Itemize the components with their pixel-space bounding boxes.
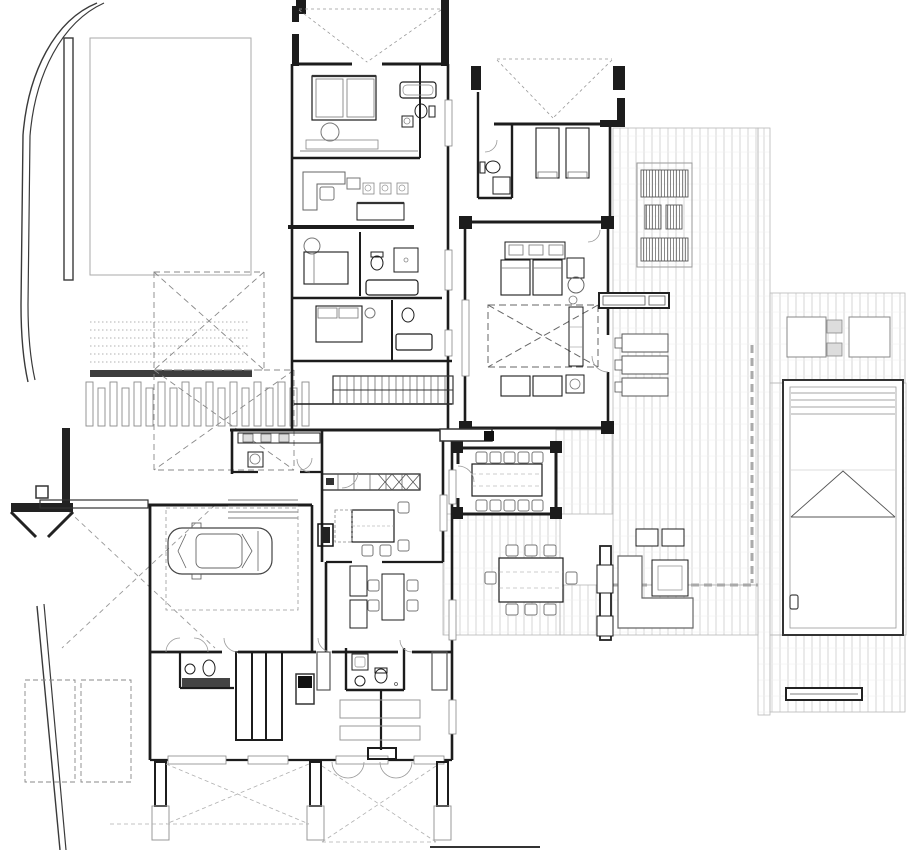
bed-foot-bench [533, 376, 562, 396]
closet [350, 600, 367, 628]
bed [533, 260, 562, 295]
fence-wall [64, 38, 73, 280]
entry-steps [228, 500, 298, 518]
car-roof [196, 534, 242, 568]
sun-lounger [787, 317, 826, 357]
door-swing [588, 230, 600, 242]
plot-lawn [90, 38, 251, 275]
stool [362, 545, 373, 556]
window [445, 100, 452, 146]
side-unit [347, 178, 360, 189]
bed-foot [568, 172, 587, 178]
window [449, 470, 456, 504]
toilet-tank [480, 162, 485, 173]
closet-row [505, 242, 565, 259]
porch-roof-lines [110, 764, 309, 824]
wardrobe [266, 652, 282, 740]
layer-walls [36, 0, 625, 840]
column-base [434, 806, 451, 840]
lounge-chair [622, 334, 668, 396]
toilet [486, 161, 500, 173]
porch-column [437, 762, 448, 806]
dining-chair [476, 452, 543, 463]
closet-section [549, 245, 563, 255]
vanity-counter [182, 678, 230, 687]
appliance [243, 434, 253, 442]
bed-foot-bench [501, 376, 530, 396]
closet [350, 566, 367, 596]
outdoor-chair [506, 545, 518, 556]
cabinet-divider [338, 474, 402, 490]
outdoor-chair [506, 604, 556, 615]
toilet [371, 256, 383, 270]
dining-chair [518, 452, 529, 463]
window [440, 495, 447, 531]
planter-bench [599, 293, 669, 308]
pendant-light [380, 183, 391, 194]
door-swing [485, 140, 497, 152]
car-windshield [242, 534, 252, 568]
lounge-chair [622, 378, 668, 396]
side-table [321, 123, 339, 141]
parking-space [25, 680, 75, 782]
garden-steps [90, 322, 250, 362]
pergola-louvers [122, 388, 129, 426]
dining-chair [476, 500, 487, 511]
closet-section [509, 245, 523, 255]
door-swing [300, 458, 312, 470]
stool [398, 540, 409, 551]
closet-section [529, 245, 543, 255]
roof-x-lines [154, 272, 264, 370]
car [168, 528, 272, 574]
toilet-tank [429, 106, 435, 117]
pergola-louvers [230, 382, 237, 426]
site-boundary [44, 604, 66, 850]
wardrobe [432, 652, 447, 690]
window [445, 330, 452, 356]
post [601, 216, 614, 229]
shower-tray [355, 657, 365, 667]
lounge-chair-arm [615, 360, 622, 370]
dresser [567, 258, 584, 278]
window [462, 300, 469, 376]
car-mirror [192, 574, 201, 579]
dining-chair [476, 500, 543, 511]
courtyard-roof-x [299, 10, 441, 62]
pergola-louvers [134, 382, 141, 426]
entry-gate-flare [11, 512, 36, 537]
dining-chair [476, 452, 487, 463]
chair [368, 600, 379, 611]
pergola-louvers [182, 382, 189, 426]
ottoman [662, 529, 684, 546]
car-rear-window [178, 534, 186, 568]
side-table [365, 308, 375, 318]
courtyard-roof-x [497, 60, 612, 118]
pergola-louvers [110, 382, 117, 426]
pendant-light [363, 183, 408, 194]
outdoor-chair [525, 545, 537, 556]
bed-foot [538, 172, 557, 178]
site-boundary [37, 606, 60, 850]
outdoor-chair [645, 205, 661, 229]
bed [566, 128, 589, 178]
post [459, 216, 472, 229]
door-swing [592, 356, 608, 372]
outdoor-chair [666, 205, 682, 229]
cooktop [326, 478, 334, 485]
lounge-chair [622, 334, 668, 352]
window [168, 756, 226, 764]
shower [493, 177, 510, 194]
wall [292, 34, 299, 66]
dining-table [472, 464, 542, 496]
lounge-chair-arm [615, 338, 622, 392]
sink-basin [404, 118, 410, 124]
door-swing [297, 459, 310, 472]
pergola-louvers [254, 382, 261, 426]
stool [398, 502, 409, 513]
pergola-louvers [206, 382, 213, 426]
chair [407, 600, 418, 611]
mattress [316, 79, 343, 117]
porch-roof-lines [322, 766, 436, 842]
bench [306, 140, 378, 149]
outdoor-chair [485, 572, 496, 584]
window [449, 600, 456, 640]
pillow [339, 308, 358, 318]
window [445, 250, 452, 290]
porch-column [155, 762, 166, 806]
screen-post [597, 565, 613, 593]
tall-cabinets [378, 474, 420, 490]
timber-deck [556, 430, 613, 514]
sink [185, 664, 195, 674]
pergola-louvers [242, 388, 249, 426]
retaining-wall [90, 370, 252, 377]
bed [312, 76, 376, 120]
appliance [298, 676, 312, 688]
column-base [307, 806, 324, 840]
site-boundary [28, 3, 104, 380]
screen-post [597, 616, 613, 636]
bed [304, 252, 348, 284]
coffee-table [652, 560, 688, 596]
pendant-light [397, 183, 408, 194]
dining-chair [490, 452, 501, 463]
pergola-louvers [158, 382, 165, 426]
stool-round [569, 296, 577, 304]
stool [380, 545, 391, 556]
toilet [402, 308, 414, 322]
window [248, 756, 288, 764]
pergola-louvers [278, 382, 285, 426]
sun-lounger [849, 317, 890, 357]
wall [600, 120, 625, 127]
post [550, 507, 562, 519]
chair [320, 187, 334, 200]
entry-gate-flare [48, 512, 73, 537]
washer-drum [250, 454, 260, 464]
appliance [279, 434, 289, 442]
parking-space [81, 680, 131, 782]
closet-section [509, 245, 563, 255]
outdoor-chair [544, 604, 556, 615]
window [449, 700, 456, 734]
pergola-louvers [266, 388, 273, 426]
bed [536, 128, 559, 178]
sofa [357, 203, 404, 220]
outdoor-chair [506, 604, 518, 615]
wall [613, 66, 625, 90]
column-base [152, 806, 169, 840]
chair-round [568, 277, 584, 293]
shelf-column [569, 307, 583, 366]
side-table [566, 375, 584, 393]
side-table [827, 320, 842, 333]
pendant-light [365, 185, 405, 191]
bathtub [400, 82, 436, 98]
dining-chair [504, 500, 515, 511]
bathtub [366, 280, 418, 295]
side-table [827, 343, 842, 356]
bathtub-inner [403, 85, 433, 95]
post [484, 431, 494, 441]
outdoor-chair [544, 545, 556, 556]
door-swing [224, 638, 238, 652]
lamp [570, 379, 580, 389]
door-swing [166, 638, 180, 652]
lounge-chair-arm [615, 338, 622, 348]
dining-chair [532, 500, 543, 511]
kitchen-counter [322, 474, 420, 490]
post [550, 441, 562, 453]
swimming-pool [783, 380, 903, 635]
island-overhang [335, 510, 352, 542]
shower [352, 654, 368, 670]
parking-bay [166, 508, 298, 610]
tap [395, 683, 398, 686]
double-height-void [488, 305, 598, 367]
void-x-lines [488, 305, 598, 367]
post [601, 421, 614, 434]
shower [394, 248, 418, 272]
lounge-chair-arm [615, 382, 622, 392]
wall [441, 0, 449, 66]
ottoman [636, 529, 658, 546]
pergola-louvers [146, 388, 153, 426]
outdoor-chair [566, 572, 577, 584]
sink [355, 676, 365, 686]
outdoor-chair [525, 604, 537, 615]
dining-chair [532, 452, 543, 463]
dining-chair [490, 500, 501, 511]
dining-chair [504, 452, 515, 463]
pergola-louvers [86, 382, 309, 426]
appliance [243, 434, 289, 442]
shelf-lines [569, 327, 583, 347]
outdoor-bench [641, 238, 688, 261]
pendant-light [399, 185, 405, 191]
floor-plan-page [0, 0, 911, 850]
chair [407, 580, 418, 591]
pergola-louvers [218, 388, 225, 426]
pillow [318, 308, 337, 318]
appliance [261, 434, 271, 442]
boundary-wall [62, 428, 70, 504]
plan-root [11, 0, 906, 850]
post [36, 486, 48, 498]
pendant-light [365, 185, 371, 191]
outdoor-dining-table [499, 558, 563, 602]
door-swing-arcs [332, 762, 412, 778]
pendant-light [382, 185, 388, 191]
toilet [203, 660, 215, 676]
floor-plan-svg [0, 0, 911, 850]
pergola-louvers [170, 388, 177, 426]
door-swing [194, 638, 208, 652]
outdoor-bench [641, 170, 688, 197]
fireplace-core [321, 527, 330, 543]
shower-drain [404, 258, 408, 262]
pendant-light [363, 183, 374, 194]
bed [501, 260, 530, 295]
porch-column [310, 762, 321, 806]
mattress [347, 79, 374, 117]
outdoor-chair [506, 545, 556, 556]
chair [368, 580, 379, 591]
toilet [375, 669, 387, 683]
site-boundary [21, 3, 97, 382]
desk [303, 172, 345, 210]
table-lines [472, 474, 542, 486]
timber-deck [758, 128, 770, 715]
dining-chair [518, 500, 529, 511]
table [382, 574, 404, 620]
door-swing [400, 640, 412, 652]
pergola-louvers [86, 382, 93, 426]
bathtub [396, 334, 432, 350]
wardrobe [317, 652, 330, 690]
wall [471, 66, 481, 90]
wardrobe [236, 652, 252, 740]
lounge-chair [622, 356, 668, 374]
pergola-louvers [194, 388, 201, 426]
pergola-louvers [98, 388, 105, 426]
